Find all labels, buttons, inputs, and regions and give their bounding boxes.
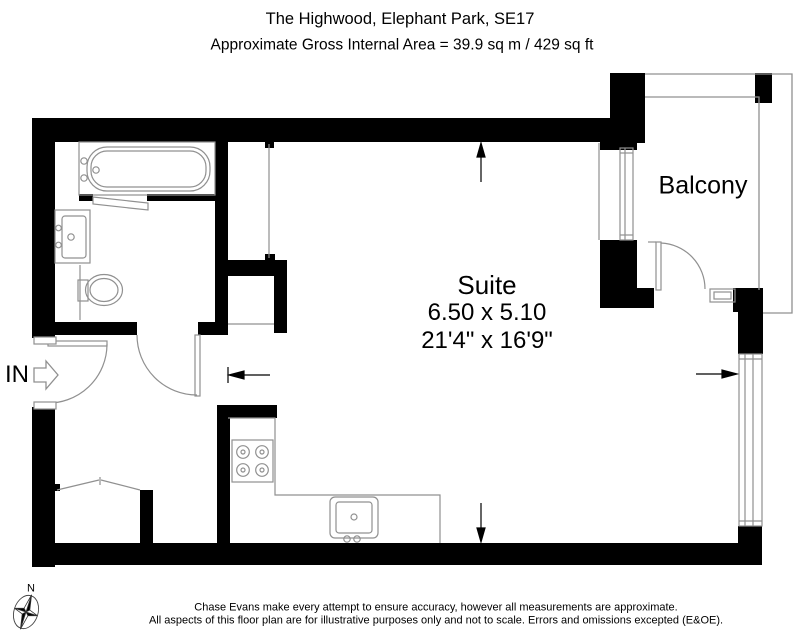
bathtub-outer (87, 147, 210, 191)
kitchen-sink-tap-icon (344, 536, 350, 542)
floor-plan-drawing (0, 0, 800, 642)
balcony-door (648, 242, 705, 290)
dimension-arrow-right-icon (696, 370, 737, 378)
dimension-arrow-up-icon (477, 143, 485, 182)
wall-balcony-topright-pier (755, 73, 772, 103)
balcony-door-side-panel (710, 289, 735, 302)
toilet-bowl-outer (86, 275, 123, 306)
disclaimer-line-1: Chase Evans make every attempt to ensure… (194, 603, 677, 614)
toilet-bowl-inner (90, 279, 118, 302)
wall-right-pier-upper (738, 312, 763, 354)
vanity-counter (55, 210, 90, 263)
bathtub-tap-icon (81, 175, 87, 181)
bathroom-door-leaf (195, 335, 200, 396)
wall-balcony-door-pier (733, 288, 763, 312)
window-suite-balcony (599, 143, 633, 240)
compass-rose-icon (9, 591, 43, 633)
plan-title: The Highwood, Elephant Park, SE17 (266, 11, 535, 28)
bathroom-door-swing-arc (137, 335, 197, 395)
vanity-drain-icon (68, 234, 74, 240)
balcony-door-leaf (656, 242, 661, 290)
partition-lines (80, 144, 274, 324)
bathtub-inner (91, 151, 206, 187)
wall-balcony-window-head (600, 142, 637, 150)
entrance-jamb-top (34, 337, 56, 344)
dimension-arrow-down-icon (477, 503, 485, 542)
wall-kitchen-hall (217, 405, 230, 543)
wall-bottom (32, 543, 762, 565)
wall-right-pier-lower (738, 526, 762, 565)
wall-balcony-lower-b (637, 288, 654, 308)
wall-top (32, 118, 643, 142)
kitchen-counter (228, 418, 440, 543)
room-label-suite: Suite (457, 272, 516, 298)
closet-doors (57, 477, 140, 490)
vanity-tap-icon (56, 225, 62, 231)
entrance-label: IN (5, 363, 29, 387)
wall-nook-top (228, 260, 287, 276)
disclaimer-line-2: All aspects of this floor plan are for i… (149, 616, 723, 627)
hob-outline (232, 440, 273, 482)
bathroom-door (137, 335, 200, 396)
vanity-tap-icon (56, 242, 62, 248)
kitchen-sink-drain-icon (351, 514, 357, 520)
wall-closet-right (140, 490, 153, 543)
entrance-jamb-bottom (34, 402, 56, 409)
kitchen-sink-tap-icon (354, 536, 360, 542)
window-suite-right (739, 354, 762, 526)
suite-dimensions-imperial: 21'4" x 16'9" (421, 329, 553, 353)
floor-plan-page: The Highwood, Elephant Park, SE17 Approx… (0, 0, 800, 642)
wall-balcony-lower-a (600, 240, 637, 308)
windows-layer (599, 143, 762, 526)
bathtub (79, 142, 215, 195)
sink-vanity (55, 210, 90, 263)
wall-balcony-left-pier (610, 73, 645, 143)
entrance-arrow-icon (34, 361, 58, 389)
toilet (78, 275, 123, 306)
wall-nook-right (274, 276, 287, 333)
kitchen-sink (330, 497, 378, 542)
bathtub-drain-icon (93, 167, 99, 173)
bath-screen-panel (93, 197, 148, 210)
compass-north-label: N (27, 584, 35, 595)
entrance-door-leaf (48, 341, 107, 346)
kitchen-sink-inner (336, 502, 372, 533)
plan-area-line: Approximate Gross Internal Area = 39.9 s… (211, 37, 594, 53)
dimension-arrow-left-icon (228, 367, 270, 383)
suite-dimensions-metric: 6.50 x 5.10 (428, 301, 547, 325)
hob (232, 440, 273, 482)
balcony-door-swing-arc (661, 243, 705, 289)
wall-bath-bottom-left (55, 322, 137, 335)
wall-utility-nib-bottom (265, 254, 275, 263)
bathtub-tap-icon (81, 158, 87, 164)
wall-left-upper (32, 118, 55, 338)
wall-bath-suite (215, 142, 228, 335)
room-label-balcony: Balcony (659, 174, 748, 199)
